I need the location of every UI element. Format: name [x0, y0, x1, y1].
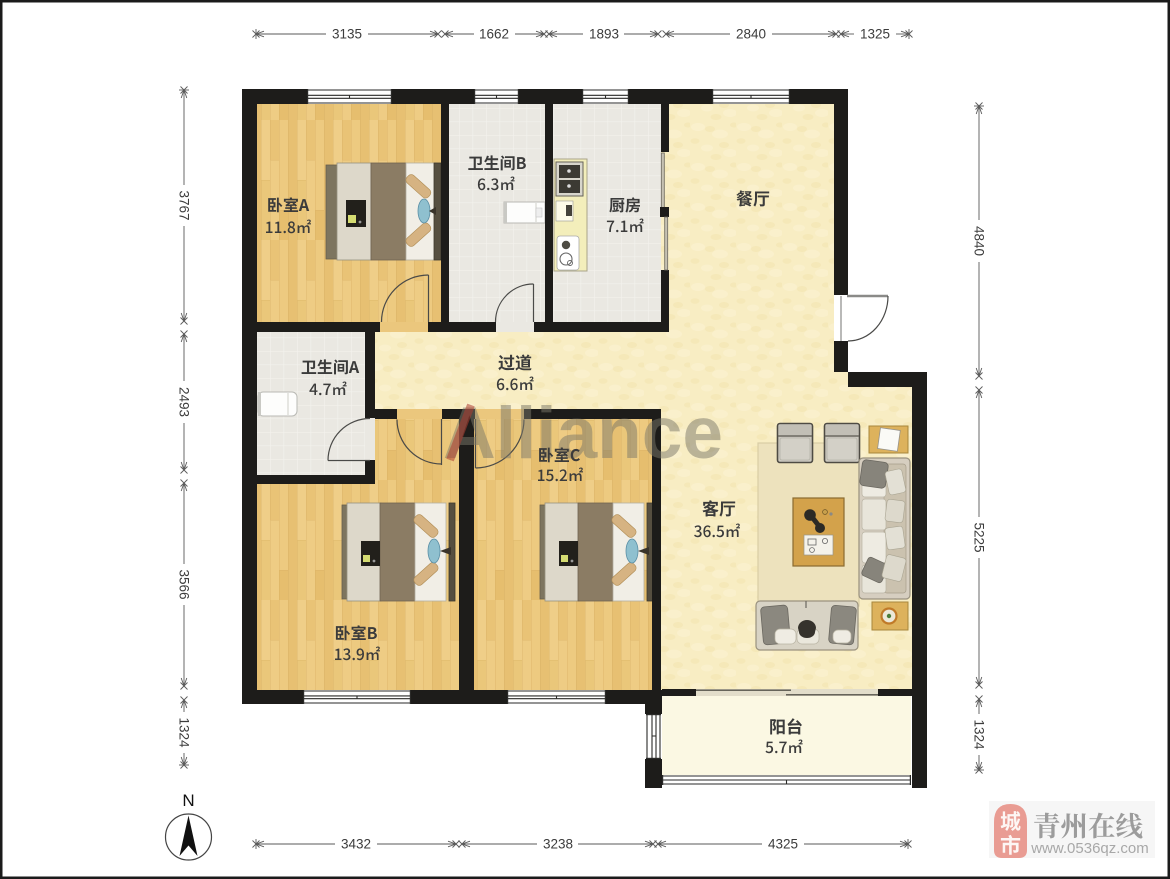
svg-text:2493: 2493: [177, 387, 192, 417]
svg-text:N: N: [182, 791, 194, 810]
svg-text:www.0536qz.com: www.0536qz.com: [1030, 840, 1149, 857]
svg-text:3767: 3767: [177, 190, 192, 220]
svg-text:Alliance: Alliance: [443, 393, 723, 474]
svg-text:1893: 1893: [589, 27, 619, 42]
svg-text:1325: 1325: [860, 27, 890, 42]
svg-text:4840: 4840: [972, 226, 987, 256]
svg-text:5225: 5225: [972, 522, 987, 552]
svg-text:4325: 4325: [768, 837, 798, 852]
svg-text:3566: 3566: [177, 569, 192, 599]
svg-text:3135: 3135: [332, 27, 362, 42]
svg-text:3238: 3238: [543, 837, 573, 852]
svg-text:3432: 3432: [341, 837, 371, 852]
svg-text:2840: 2840: [736, 27, 766, 42]
svg-text:1324: 1324: [177, 717, 192, 748]
svg-text:1324: 1324: [972, 719, 987, 750]
svg-text:1662: 1662: [479, 27, 509, 42]
